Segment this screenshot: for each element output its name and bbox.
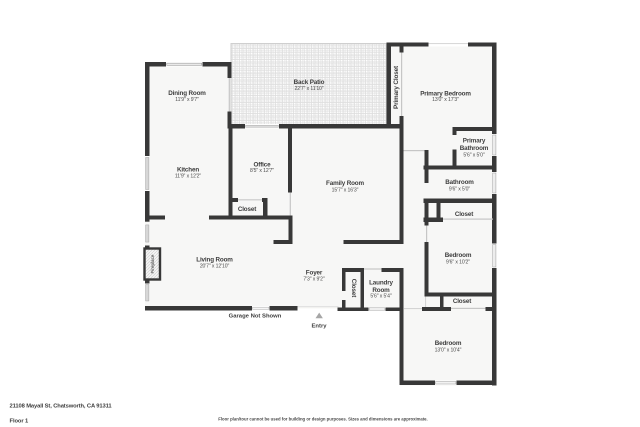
svg-text:20'7" x 12'10": 20'7" x 12'10" xyxy=(200,264,230,270)
svg-text:Living Room: Living Room xyxy=(196,257,233,264)
svg-text:Back Patio: Back Patio xyxy=(294,79,325,86)
svg-text:5'6" x 5'4": 5'6" x 5'4" xyxy=(370,294,391,300)
svg-text:Primary Closet: Primary Closet xyxy=(393,65,400,109)
svg-text:Floor 1: Floor 1 xyxy=(10,419,30,425)
svg-text:22'7" x 11'10": 22'7" x 11'10" xyxy=(295,86,324,92)
svg-text:9'6" x 10'2": 9'6" x 10'2" xyxy=(446,260,470,266)
svg-text:Laundry: Laundry xyxy=(369,280,393,287)
svg-text:Family Room: Family Room xyxy=(326,180,364,187)
svg-text:9'6" x 5'0": 9'6" x 5'0" xyxy=(449,187,470,193)
svg-text:11'9" x 12'2": 11'9" x 12'2" xyxy=(175,174,202,180)
svg-text:Fireplace: Fireplace xyxy=(150,254,155,273)
svg-text:Bathroom: Bathroom xyxy=(445,179,474,186)
svg-text:Primary: Primary xyxy=(463,138,486,145)
svg-text:Closet: Closet xyxy=(238,206,257,213)
svg-text:8'5" x 12'7": 8'5" x 12'7" xyxy=(250,168,274,174)
svg-text:Bedroom: Bedroom xyxy=(445,252,472,259)
svg-text:Entry: Entry xyxy=(311,324,327,330)
svg-text:13'0" x 17'3": 13'0" x 17'3" xyxy=(432,97,459,103)
svg-text:21108 Mayall St, Chatsworth, C: 21108 Mayall St, Chatsworth, CA 91311 xyxy=(10,403,113,409)
svg-text:Closet: Closet xyxy=(350,279,357,298)
svg-text:Bathroom: Bathroom xyxy=(460,145,489,152)
svg-text:Garage Not Shown: Garage Not Shown xyxy=(229,314,282,320)
svg-text:Closet: Closet xyxy=(455,211,474,218)
svg-text:13'0" x 10'4": 13'0" x 10'4" xyxy=(435,348,462,354)
svg-text:Bedroom: Bedroom xyxy=(435,340,462,347)
svg-text:Closet: Closet xyxy=(453,298,472,305)
svg-text:15'7" x 16'3": 15'7" x 16'3" xyxy=(332,188,359,194)
svg-text:Foyer: Foyer xyxy=(306,270,323,277)
svg-text:Floor plan/tour cannot be used: Floor plan/tour cannot be used for build… xyxy=(218,416,427,421)
svg-text:Kitchen: Kitchen xyxy=(177,167,199,174)
svg-text:11'9" x 9'7": 11'9" x 9'7" xyxy=(175,97,199,103)
svg-text:5'6" x 5'0": 5'6" x 5'0" xyxy=(463,153,484,159)
svg-text:7'3" x 9'2": 7'3" x 9'2" xyxy=(303,277,324,283)
